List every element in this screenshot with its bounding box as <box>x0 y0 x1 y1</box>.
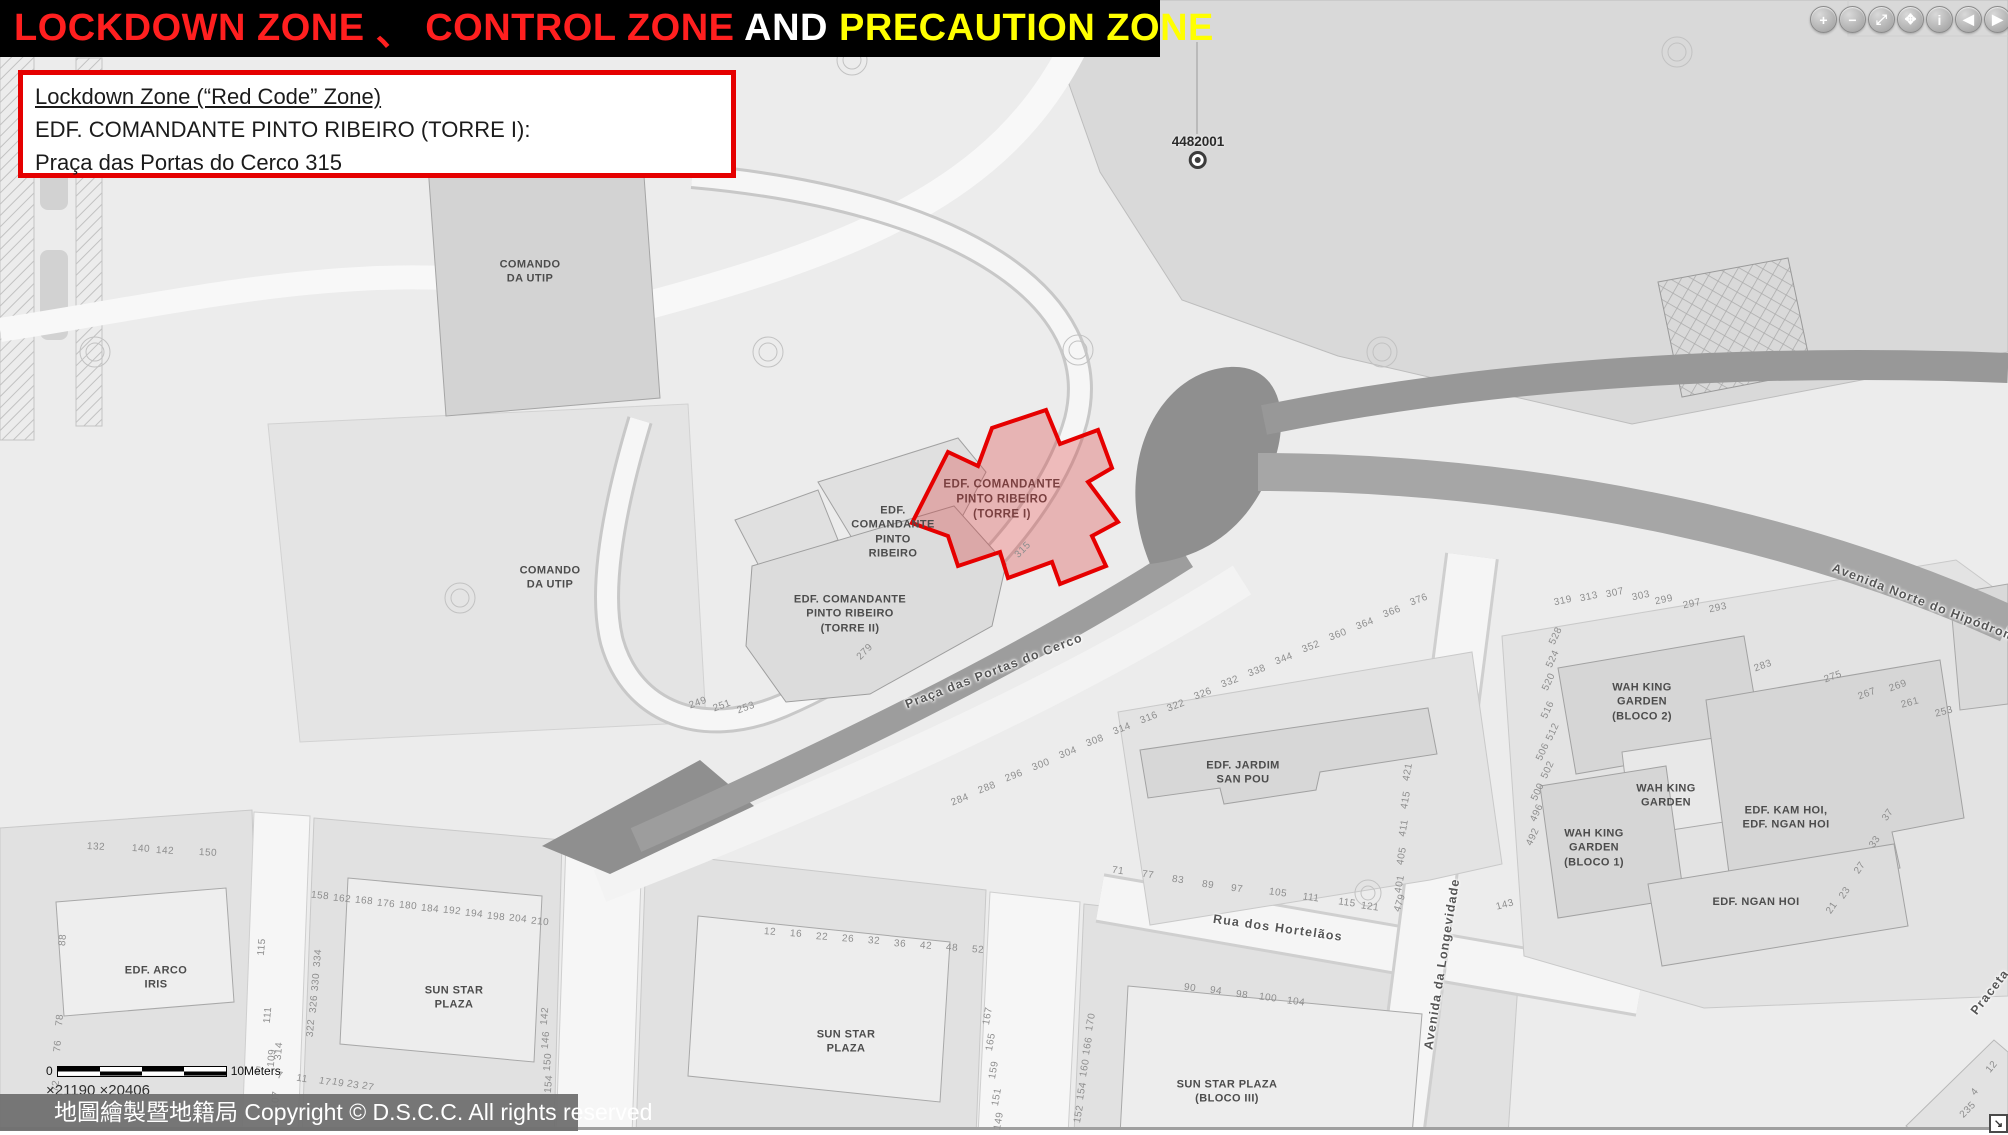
zoom-in-icon[interactable]: + <box>1810 6 1837 33</box>
title-segment: CONTROL ZONE <box>425 7 734 50</box>
previous-extent-icon[interactable]: ◀ <box>1955 6 1982 33</box>
copyright-bar: 地圖繪製暨地籍局 Copyright © D.S.C.C. All rights… <box>0 1094 578 1131</box>
resize-handle-icon[interactable]: ↘ <box>1989 1114 2008 1133</box>
title-segment: LOCKDOWN ZONE <box>14 7 365 50</box>
pan-icon[interactable]: ✥ <box>1897 6 1924 33</box>
building <box>56 888 234 1016</box>
full-extent-icon[interactable]: ⤢ <box>1868 6 1895 33</box>
survey-marker: 4482001 <box>1172 134 1225 169</box>
lockdown-info-box: Lockdown Zone (“Red Code” Zone) EDF. COM… <box>18 70 736 178</box>
building <box>688 916 950 1102</box>
zoom-out-icon[interactable]: − <box>1839 6 1866 33</box>
scale-distance-label: 10Meters <box>231 1064 281 1078</box>
title-banner: LOCKDOWN ZONE 、 CONTROL ZONE AND PRECAUT… <box>0 0 1160 57</box>
street <box>242 812 310 1135</box>
building <box>340 878 542 1062</box>
bullseye-icon <box>1189 151 1207 169</box>
title-segment: 、 <box>365 1 426 56</box>
survey-marker-label: 4482001 <box>1172 134 1225 149</box>
info-line-building: EDF. COMANDANTE PINTO RIBEIRO (TORRE I): <box>35 113 721 146</box>
title-segment: AND <box>735 7 840 50</box>
title-segment: PRECAUTION ZONE <box>839 7 1214 50</box>
building <box>428 148 660 416</box>
street <box>978 892 1080 1135</box>
scale-bar-graphic <box>57 1066 227 1077</box>
scale-bar: 0 10Meters <box>46 1064 281 1078</box>
identify-icon[interactable]: i <box>1926 6 1953 33</box>
next-extent-icon[interactable]: ▶ <box>1984 6 2008 33</box>
scale-zero-label: 0 <box>46 1064 53 1078</box>
info-line-zone-type: Lockdown Zone (“Red Code” Zone) <box>35 80 721 113</box>
info-line-address: Praça das Portas do Cerco 315 <box>35 146 721 179</box>
map-viewport: COMANDO DA UTIPCOMANDO DA UTIPEDF. COMAN… <box>0 0 2008 1135</box>
